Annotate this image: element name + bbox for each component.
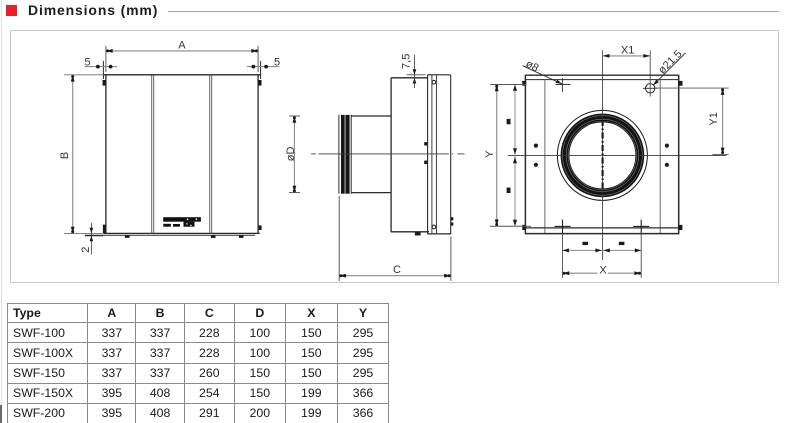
- svg-text:C: C: [393, 264, 401, 276]
- svg-text:Y1: Y1: [708, 112, 720, 125]
- svg-text:B: B: [59, 152, 71, 159]
- svg-text:øD: øD: [285, 147, 297, 162]
- svg-text:5: 5: [85, 56, 91, 68]
- svg-text:7,5: 7,5: [401, 54, 413, 69]
- svg-text:ø21,5: ø21,5: [656, 48, 684, 76]
- svg-text:5: 5: [274, 56, 280, 68]
- svg-text:X: X: [599, 264, 607, 276]
- svg-text:Y: Y: [484, 150, 496, 158]
- svg-text:X1: X1: [621, 44, 634, 56]
- svg-text:ø8: ø8: [524, 58, 541, 75]
- svg-text:A: A: [178, 40, 186, 52]
- svg-text:2: 2: [80, 247, 92, 253]
